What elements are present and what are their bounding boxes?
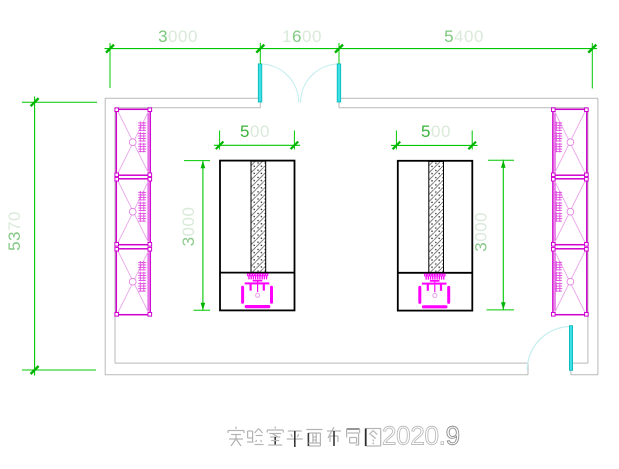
svg-text:5370: 5370	[5, 211, 24, 251]
svg-text:2020.9: 2020.9	[382, 421, 460, 451]
svg-text:3000: 3000	[471, 212, 490, 252]
svg-text:500: 500	[421, 122, 451, 141]
svg-text:3000: 3000	[179, 207, 198, 247]
svg-text:3000: 3000	[158, 27, 198, 46]
svg-text:5400: 5400	[444, 27, 484, 46]
svg-text:500: 500	[240, 122, 270, 141]
svg-text:1600: 1600	[282, 27, 322, 46]
